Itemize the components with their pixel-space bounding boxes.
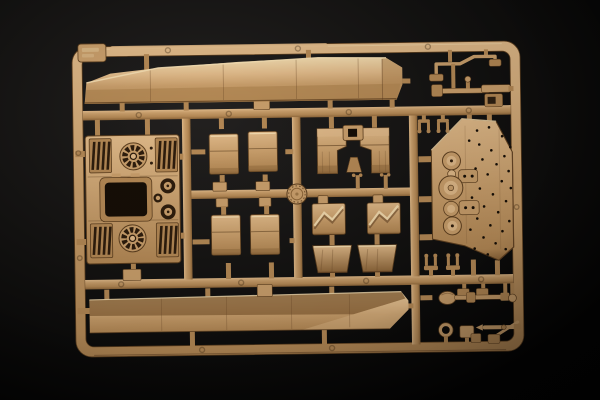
vignette-overlay <box>0 0 600 400</box>
sprue-illustration <box>0 0 600 400</box>
photo-of-model-sprue <box>0 0 600 400</box>
